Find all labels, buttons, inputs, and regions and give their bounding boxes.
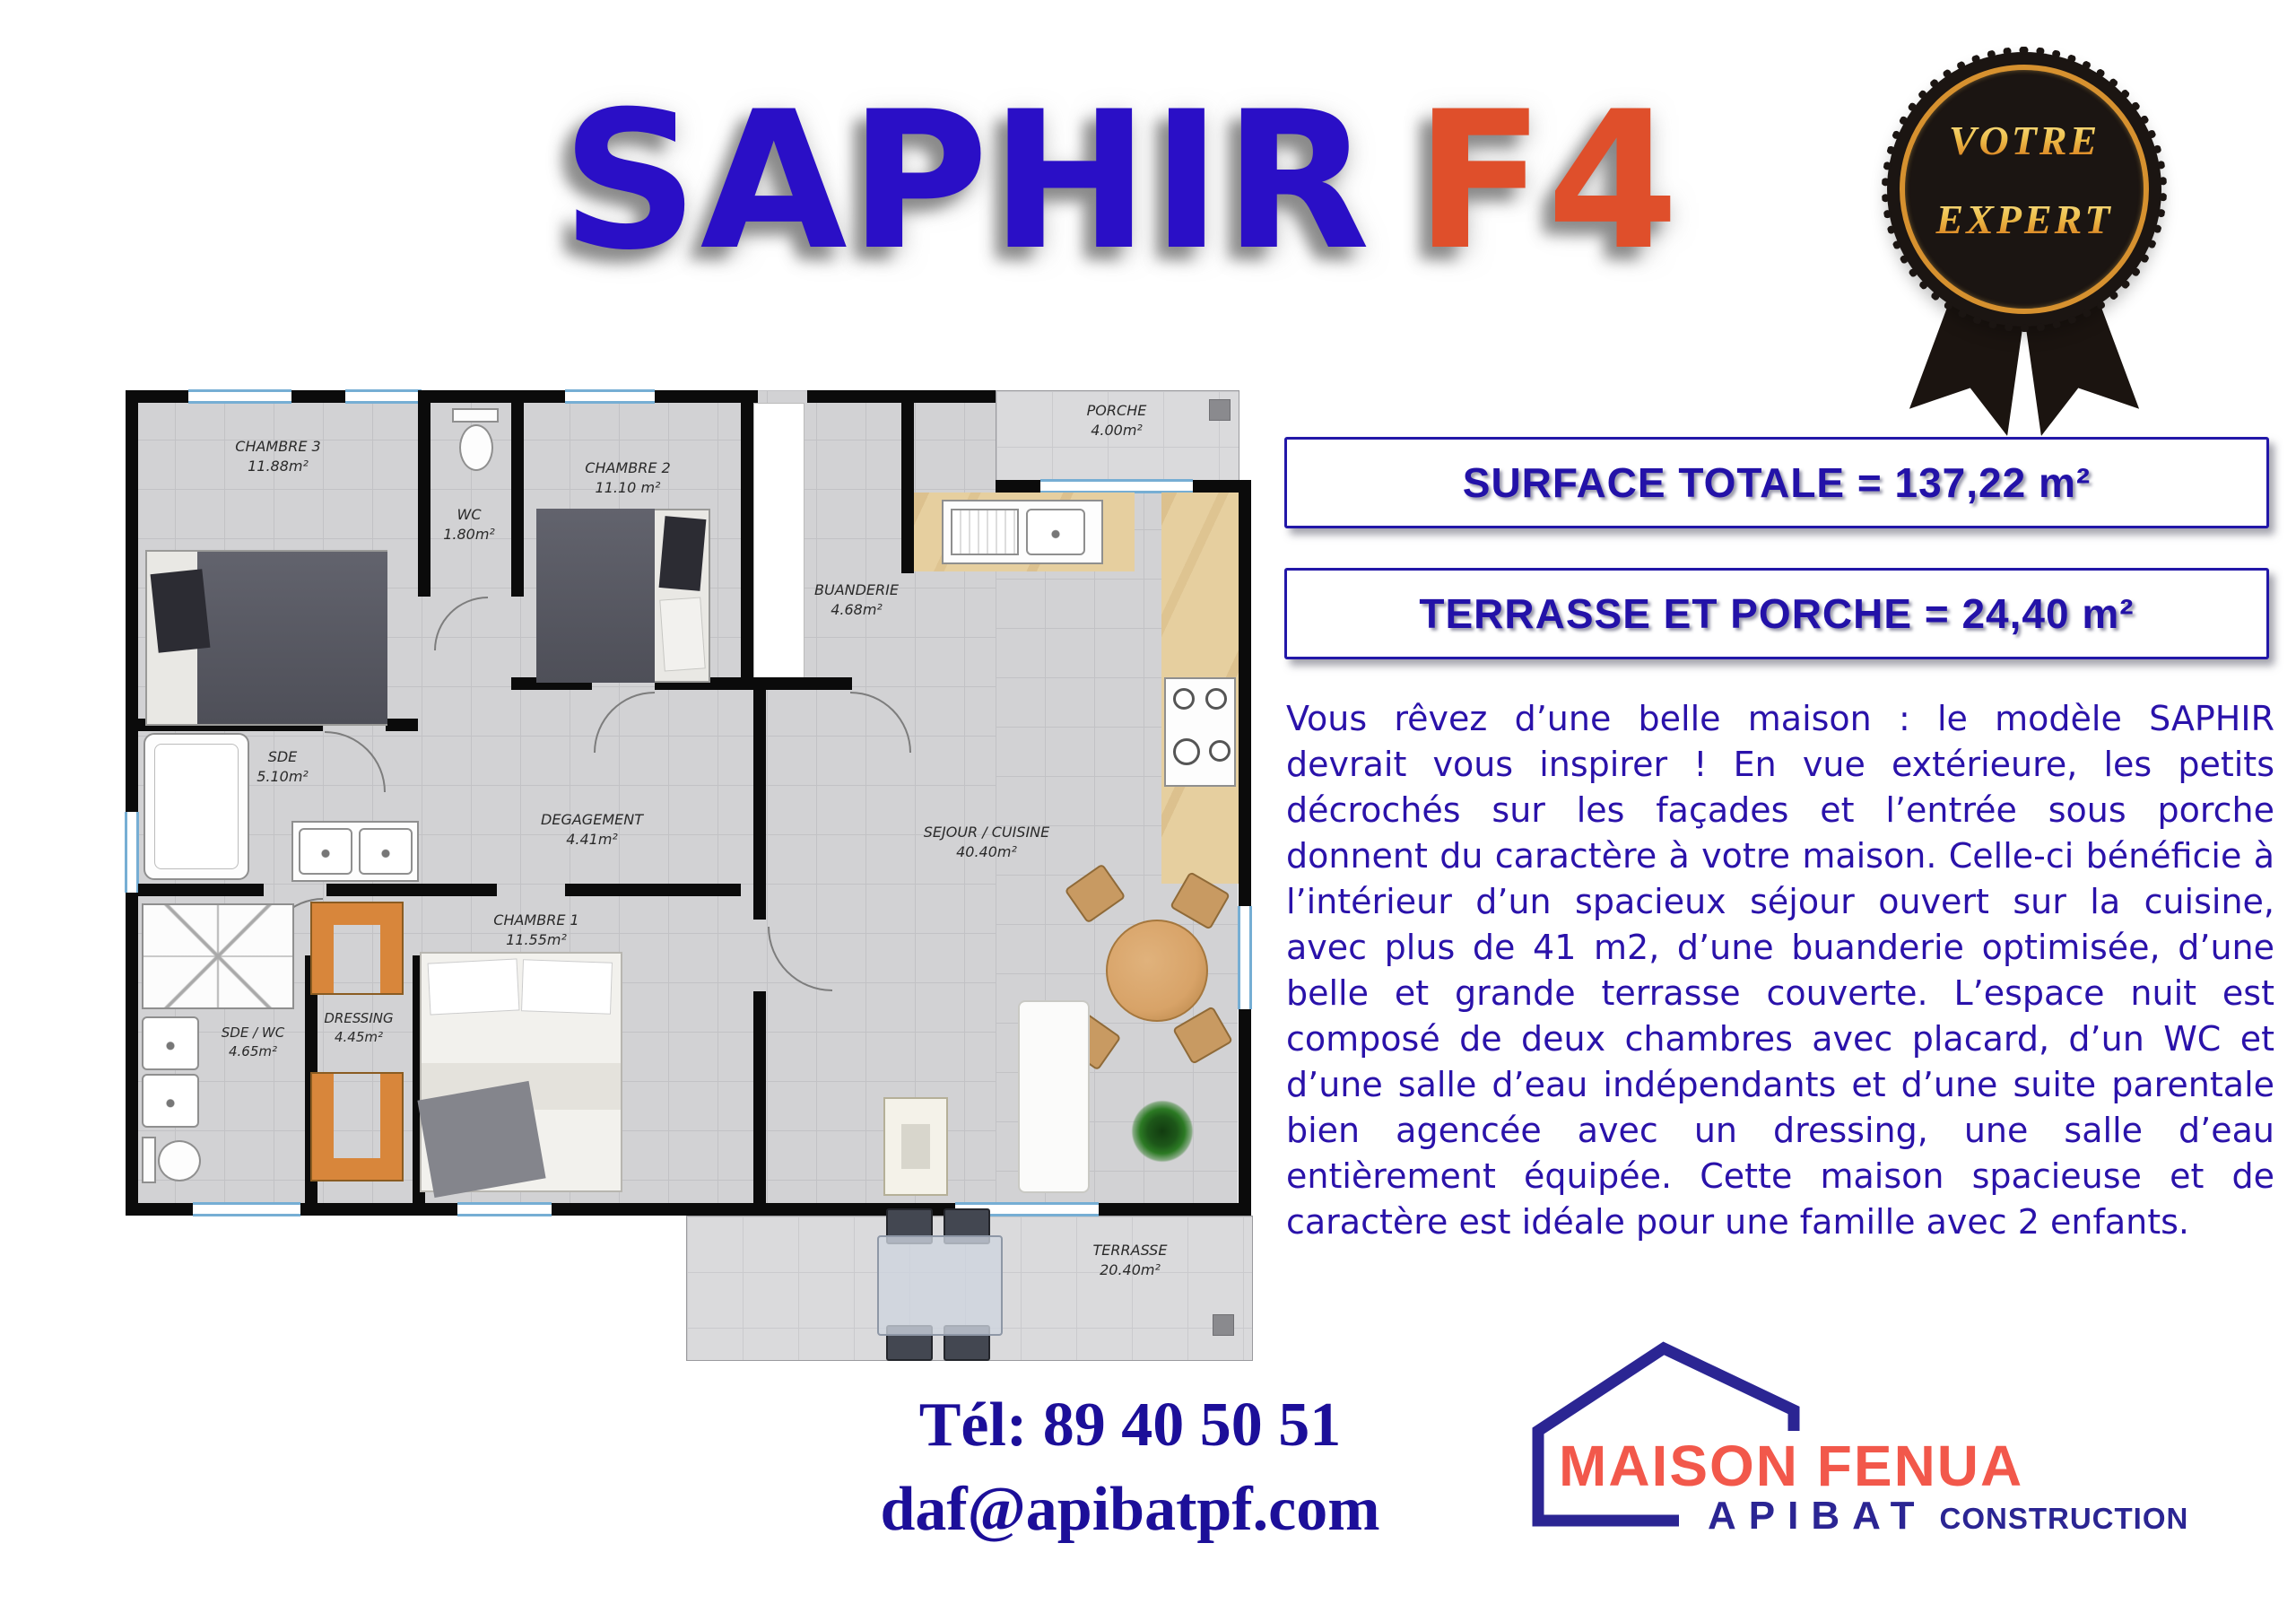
room-label-degagement: DEGAGEMENT 4.41m² <box>502 810 682 850</box>
sink <box>142 1074 199 1128</box>
room-area: 4.41m² <box>502 830 682 850</box>
room-name: DRESSING <box>307 1009 411 1028</box>
contact-block: Tél: 89 40 50 51 daf@apibatpf.com <box>825 1392 1435 1542</box>
surface-total-text: SURFACE TOTALE = 137,22 m² <box>1463 458 2091 507</box>
bed-pillow <box>659 516 707 591</box>
dressing-wardrobe-upper <box>312 903 402 993</box>
wall <box>300 1203 457 1216</box>
toilet-tank <box>452 408 499 423</box>
stove-burner <box>1205 688 1227 710</box>
page-title: SAPHIRF4 <box>305 70 1937 292</box>
badge-text-line2: EXPERT <box>1887 196 2161 243</box>
stove-burner <box>1173 738 1200 765</box>
room-area: 4.65m² <box>203 1042 303 1061</box>
stove-burner <box>1209 740 1231 762</box>
terrace-porch-text: TERRASSE ET PORCHE = 24,40 m² <box>1419 589 2134 638</box>
room-label-buanderie: BUANDERIE 4.68m² <box>798 580 915 621</box>
room-label-chambre1: CHAMBRE 1 11.55m² <box>456 911 617 951</box>
sink <box>359 828 413 875</box>
toilet-tank <box>142 1137 156 1183</box>
sink <box>142 1016 199 1070</box>
room-name: CHAMBRE 1 <box>456 911 617 930</box>
description-paragraph: Vous rêvez d’une belle maison : le modèl… <box>1286 696 2274 1346</box>
wall <box>126 390 138 812</box>
room-area: 4.45m² <box>307 1028 411 1047</box>
toilet-bowl <box>459 424 493 471</box>
expert-rosette-badge: VOTRE EXPERT <box>1873 38 2178 414</box>
company-logo: MAISON FENUA APIBATCONSTRUCTION <box>1516 1332 2242 1601</box>
window <box>457 1202 552 1216</box>
badge-medallion-icon: VOTRE EXPERT <box>1887 52 2161 327</box>
surface-total-banner: SURFACE TOTALE = 137,22 m² <box>1284 437 2269 528</box>
terrace-post <box>1213 1314 1234 1336</box>
room-name: SDE / WC <box>203 1024 303 1042</box>
floor-plan: CHAMBRE 3 11.88m² WC 1.80m² CHAMBRE 2 11… <box>90 381 1283 1368</box>
title-model-name: SAPHIR <box>561 70 1372 292</box>
wall <box>753 690 766 920</box>
room-area: 40.40m² <box>879 842 1094 862</box>
sink <box>299 828 352 875</box>
wall <box>326 884 497 896</box>
room-name: SEJOUR / CUISINE <box>879 823 1094 842</box>
wall <box>418 390 430 597</box>
window <box>125 812 139 893</box>
window <box>565 389 655 404</box>
room-name: TERRASSE <box>1058 1241 1202 1260</box>
wall <box>807 390 996 403</box>
plant <box>1119 1088 1205 1174</box>
window <box>1238 906 1252 1009</box>
room-name: CHAMBRE 3 <box>197 437 359 457</box>
wall <box>1239 1009 1251 1216</box>
bed-pillow <box>521 959 613 1014</box>
bed-duvet <box>536 509 655 683</box>
room-name: WC <box>420 505 518 525</box>
wall <box>422 390 565 403</box>
logo-brand-name: MAISON FENUA <box>1559 1433 2023 1499</box>
sofa <box>1018 1000 1090 1193</box>
wall <box>386 719 418 731</box>
title-model-type: F4 <box>1415 70 1681 292</box>
wall <box>1239 480 1251 906</box>
wall <box>291 390 345 403</box>
room-area: 4.68m² <box>798 600 915 620</box>
room-label-sde: SDE 5.10m² <box>224 747 341 788</box>
room-label-wc: WC 1.80m² <box>420 505 518 545</box>
room-name: SDE <box>224 747 341 767</box>
room-label-chambre2: CHAMBRE 2 11.10 m² <box>547 458 709 499</box>
room-area: 11.88m² <box>197 457 359 476</box>
sink-drainer <box>951 509 1019 555</box>
bed-pillow <box>151 569 211 653</box>
stove-burner <box>1173 688 1195 710</box>
wall <box>126 1203 193 1216</box>
email-address: daf@apibatpf.com <box>825 1477 1435 1543</box>
phone-number: Tél: 89 40 50 51 <box>825 1392 1435 1459</box>
room-name: BUANDERIE <box>798 580 915 600</box>
room-label-terrasse: TERRASSE 20.40m² <box>1058 1241 1202 1281</box>
window <box>345 389 422 404</box>
wall <box>741 390 753 690</box>
terrace-porch-banner: TERRASSE ET PORCHE = 24,40 m² <box>1284 568 2269 659</box>
room-label-sejour: SEJOUR / CUISINE 40.40m² <box>879 823 1094 863</box>
wall <box>511 390 524 597</box>
wall <box>753 677 852 690</box>
window <box>1040 479 1193 493</box>
wall <box>138 884 264 896</box>
dining-table <box>1106 920 1208 1022</box>
porch-post <box>1209 399 1231 421</box>
wall <box>126 893 138 1216</box>
room-label-dressing: DRESSING 4.45m² <box>307 1009 411 1047</box>
window <box>188 389 291 404</box>
duct-void <box>753 403 804 679</box>
room-label-sdewc: SDE / WC 4.65m² <box>203 1024 303 1061</box>
room-area: 5.10m² <box>224 767 341 787</box>
room-name: DEGAGEMENT <box>502 810 682 830</box>
bed-duvet <box>197 552 387 724</box>
logo-company-tagline: CONSTRUCTION <box>1940 1502 2189 1535</box>
sink-basin <box>1026 509 1085 555</box>
room-area: 4.00m² <box>1054 421 1179 440</box>
shower <box>142 903 294 1009</box>
room-area: 11.55m² <box>456 930 617 950</box>
room-area: 20.40m² <box>1058 1260 1202 1280</box>
logo-company-name: APIBAT <box>1708 1494 1927 1538</box>
room-area: 11.10 m² <box>547 478 709 498</box>
terrace-table <box>877 1235 1003 1336</box>
toilet-bowl <box>158 1140 201 1181</box>
wall <box>901 403 914 573</box>
wall <box>996 480 1040 493</box>
wall <box>753 991 766 1203</box>
window <box>193 1202 300 1216</box>
side-table-inset <box>901 1124 930 1169</box>
bed-throw <box>417 1081 545 1198</box>
room-label-porche: PORCHE 4.00m² <box>1054 401 1179 441</box>
dressing-wardrobe-lower <box>312 1074 402 1180</box>
room-area: 1.80m² <box>420 525 518 545</box>
logo-subtitle-row: APIBATCONSTRUCTION <box>1708 1494 2188 1539</box>
wall <box>565 884 741 896</box>
bed-pillow <box>659 597 705 671</box>
bed-pillow <box>428 958 520 1015</box>
wall <box>1099 1203 1251 1216</box>
room-label-chambre3: CHAMBRE 3 11.88m² <box>197 437 359 477</box>
badge-text-line1: VOTRE <box>1887 117 2161 164</box>
room-name: PORCHE <box>1054 401 1179 421</box>
badge-gold-ring <box>1900 65 2149 314</box>
flyer-page: SAPHIRF4 VOTRE EXPERT SURFACE TOTALE = 1… <box>0 0 2296 1613</box>
room-name: CHAMBRE 2 <box>547 458 709 478</box>
